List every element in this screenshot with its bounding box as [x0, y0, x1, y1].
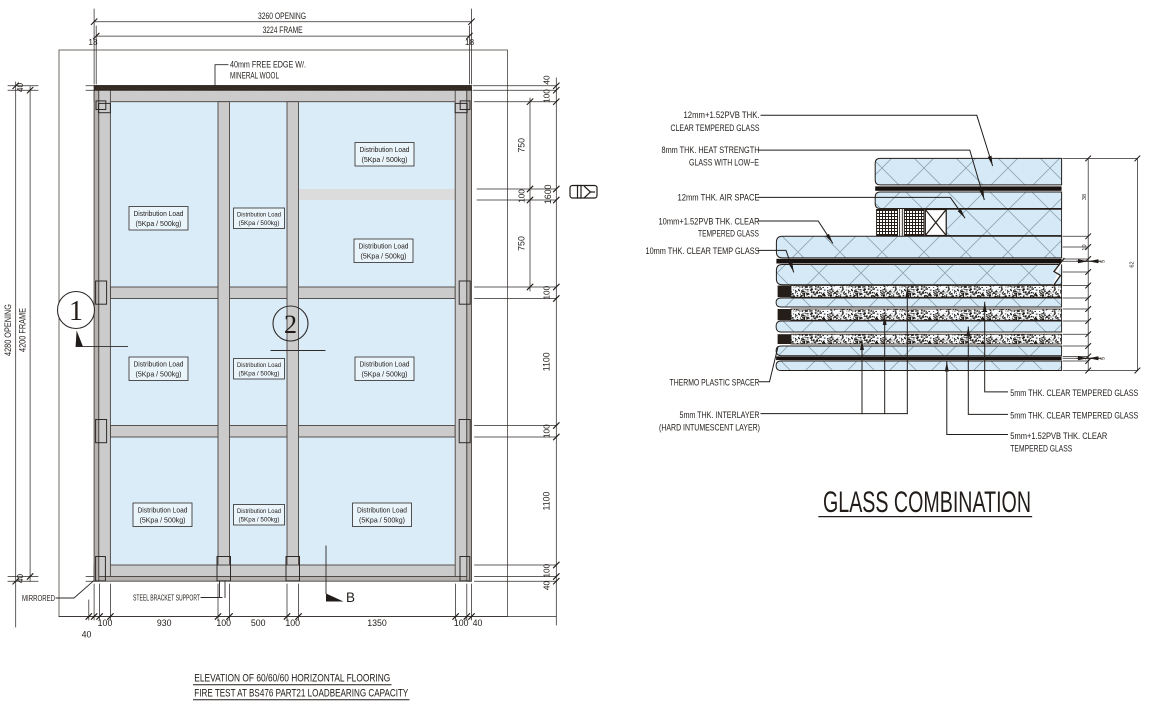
- svg-text:(5Kpa / 500kg): (5Kpa / 500kg): [136, 219, 182, 228]
- svg-text:(5Kpa / 500kg): (5Kpa / 500kg): [361, 251, 407, 260]
- svg-text:100: 100: [542, 89, 552, 103]
- svg-text:FIRE TEST AT BS476 PART21 LOAD: FIRE TEST AT BS476 PART21 LOADBEARING CA…: [194, 688, 408, 700]
- svg-text:1100: 1100: [542, 491, 552, 510]
- svg-text:100: 100: [98, 618, 113, 628]
- svg-text:(HARD INTUMESCENT LAYER): (HARD INTUMESCENT LAYER): [659, 422, 760, 433]
- svg-text:18: 18: [465, 37, 475, 47]
- svg-text:Distribution Load: Distribution Load: [134, 360, 184, 369]
- svg-text:8mm THK. HEAT STRENGTH: 8mm THK. HEAT STRENGTH: [662, 145, 760, 156]
- svg-text:500: 500: [251, 618, 266, 628]
- svg-text:750: 750: [517, 138, 527, 153]
- svg-text:100: 100: [216, 618, 231, 628]
- svg-text:100: 100: [454, 618, 469, 628]
- svg-text:CLEAR TEMPERED GLASS: CLEAR TEMPERED GLASS: [671, 123, 760, 134]
- svg-text:4200 FRAME: 4200 FRAME: [18, 308, 28, 352]
- svg-text:1: 1: [69, 296, 83, 327]
- svg-text:Distribution Load: Distribution Load: [134, 209, 184, 218]
- svg-text:Distribution Load: Distribution Load: [357, 506, 407, 515]
- svg-text:5mm THK. CLEAR TEMPERED GLASS: 5mm THK. CLEAR TEMPERED GLASS: [1010, 388, 1138, 399]
- svg-text:Distribution Load: Distribution Load: [360, 145, 410, 154]
- svg-text:40: 40: [542, 581, 552, 591]
- svg-text:5mm THK. INTERLAYER: 5mm THK. INTERLAYER: [680, 410, 760, 421]
- svg-text:(5Kpa / 500kg): (5Kpa / 500kg): [239, 220, 280, 227]
- svg-text:100: 100: [517, 189, 527, 203]
- svg-text:930: 930: [157, 618, 172, 628]
- svg-text:40: 40: [473, 618, 483, 628]
- svg-text:(5Kpa / 500kg): (5Kpa / 500kg): [140, 515, 186, 524]
- svg-text:TEMPERED GLASS: TEMPERED GLASS: [698, 229, 759, 240]
- svg-text:10mm+1.52PVB THK. CLEAR: 10mm+1.52PVB THK. CLEAR: [659, 216, 760, 227]
- svg-text:5: 5: [1101, 260, 1107, 263]
- svg-text:40: 40: [82, 630, 92, 640]
- svg-text:GLASS COMBINATION: GLASS COMBINATION: [823, 486, 1031, 519]
- svg-text:4280 OPENING: 4280 OPENING: [3, 304, 13, 356]
- svg-text:3224 FRAME: 3224 FRAME: [263, 25, 303, 35]
- svg-text:12mm+1.52PVB THK.: 12mm+1.52PVB THK.: [684, 110, 760, 121]
- svg-text:100: 100: [542, 563, 552, 577]
- svg-text:ELEVATION OF 60/60/60 HORIZONT: ELEVATION OF 60/60/60 HORIZONTAL FLOORIN…: [194, 673, 390, 685]
- svg-text:THERMO PLASTIC SPACER: THERMO PLASTIC SPACER: [670, 377, 760, 388]
- svg-text:2: 2: [284, 310, 297, 339]
- svg-text:750: 750: [517, 236, 527, 251]
- svg-text:40: 40: [15, 83, 25, 93]
- svg-text:38: 38: [1082, 194, 1088, 200]
- svg-text:(5Kpa / 500kg): (5Kpa / 500kg): [239, 516, 280, 523]
- svg-text:1100: 1100: [542, 352, 552, 371]
- svg-text:12mm THK. AIR SPACE: 12mm THK. AIR SPACE: [678, 193, 760, 204]
- svg-text:10mm THK. CLEAR TEMP GLASS: 10mm THK. CLEAR TEMP GLASS: [646, 246, 760, 257]
- svg-text:Distribution Load: Distribution Load: [360, 360, 410, 369]
- svg-text:(5Kpa / 500kg): (5Kpa / 500kg): [362, 155, 408, 164]
- svg-text:5mm THK. CLEAR TEMPERED GLASS: 5mm THK. CLEAR TEMPERED GLASS: [1010, 410, 1138, 421]
- svg-text:B: B: [346, 590, 355, 605]
- svg-text:GLASS WITH LOW−E: GLASS WITH LOW−E: [689, 158, 759, 169]
- svg-text:1350: 1350: [367, 618, 387, 628]
- svg-text:MIRRORED: MIRRORED: [22, 594, 55, 603]
- svg-text:Distribution Load: Distribution Load: [237, 508, 281, 515]
- svg-text:(5Kpa / 500kg): (5Kpa / 500kg): [362, 369, 408, 378]
- svg-text:10: 10: [1082, 244, 1088, 250]
- svg-text:MINERAL WOOL: MINERAL WOOL: [230, 71, 279, 81]
- svg-text:3260 OPENING: 3260 OPENING: [258, 11, 306, 21]
- svg-text:100: 100: [285, 618, 300, 628]
- svg-text:40mm FREE EDGE W/.: 40mm FREE EDGE W/.: [230, 60, 306, 70]
- svg-text:Distribution Load: Distribution Load: [237, 211, 281, 218]
- svg-text:(5Kpa / 500kg): (5Kpa / 500kg): [239, 370, 280, 377]
- svg-text:(5Kpa / 500kg): (5Kpa / 500kg): [136, 369, 182, 378]
- svg-text:5: 5: [1101, 357, 1107, 360]
- svg-text:Distribution Load: Distribution Load: [359, 242, 409, 251]
- svg-text:Distribution Load: Distribution Load: [138, 506, 188, 515]
- svg-text:TEMPERED GLASS: TEMPERED GLASS: [1010, 443, 1072, 454]
- svg-text:100: 100: [542, 424, 552, 438]
- svg-text:18: 18: [88, 37, 98, 47]
- svg-text:Distribution Load: Distribution Load: [237, 362, 281, 369]
- svg-text:5mm+1.52PVB THK. CLEAR: 5mm+1.52PVB THK. CLEAR: [1010, 431, 1107, 442]
- svg-text:40: 40: [15, 574, 25, 584]
- svg-text:1600: 1600: [543, 184, 553, 204]
- svg-text:STEEL BRACKET SUPPORT: STEEL BRACKET SUPPORT: [133, 594, 200, 603]
- svg-text:(5Kpa / 500kg): (5Kpa / 500kg): [359, 515, 405, 524]
- svg-text:100: 100: [542, 285, 552, 299]
- svg-text:62: 62: [1130, 261, 1136, 267]
- svg-text:40: 40: [542, 75, 552, 85]
